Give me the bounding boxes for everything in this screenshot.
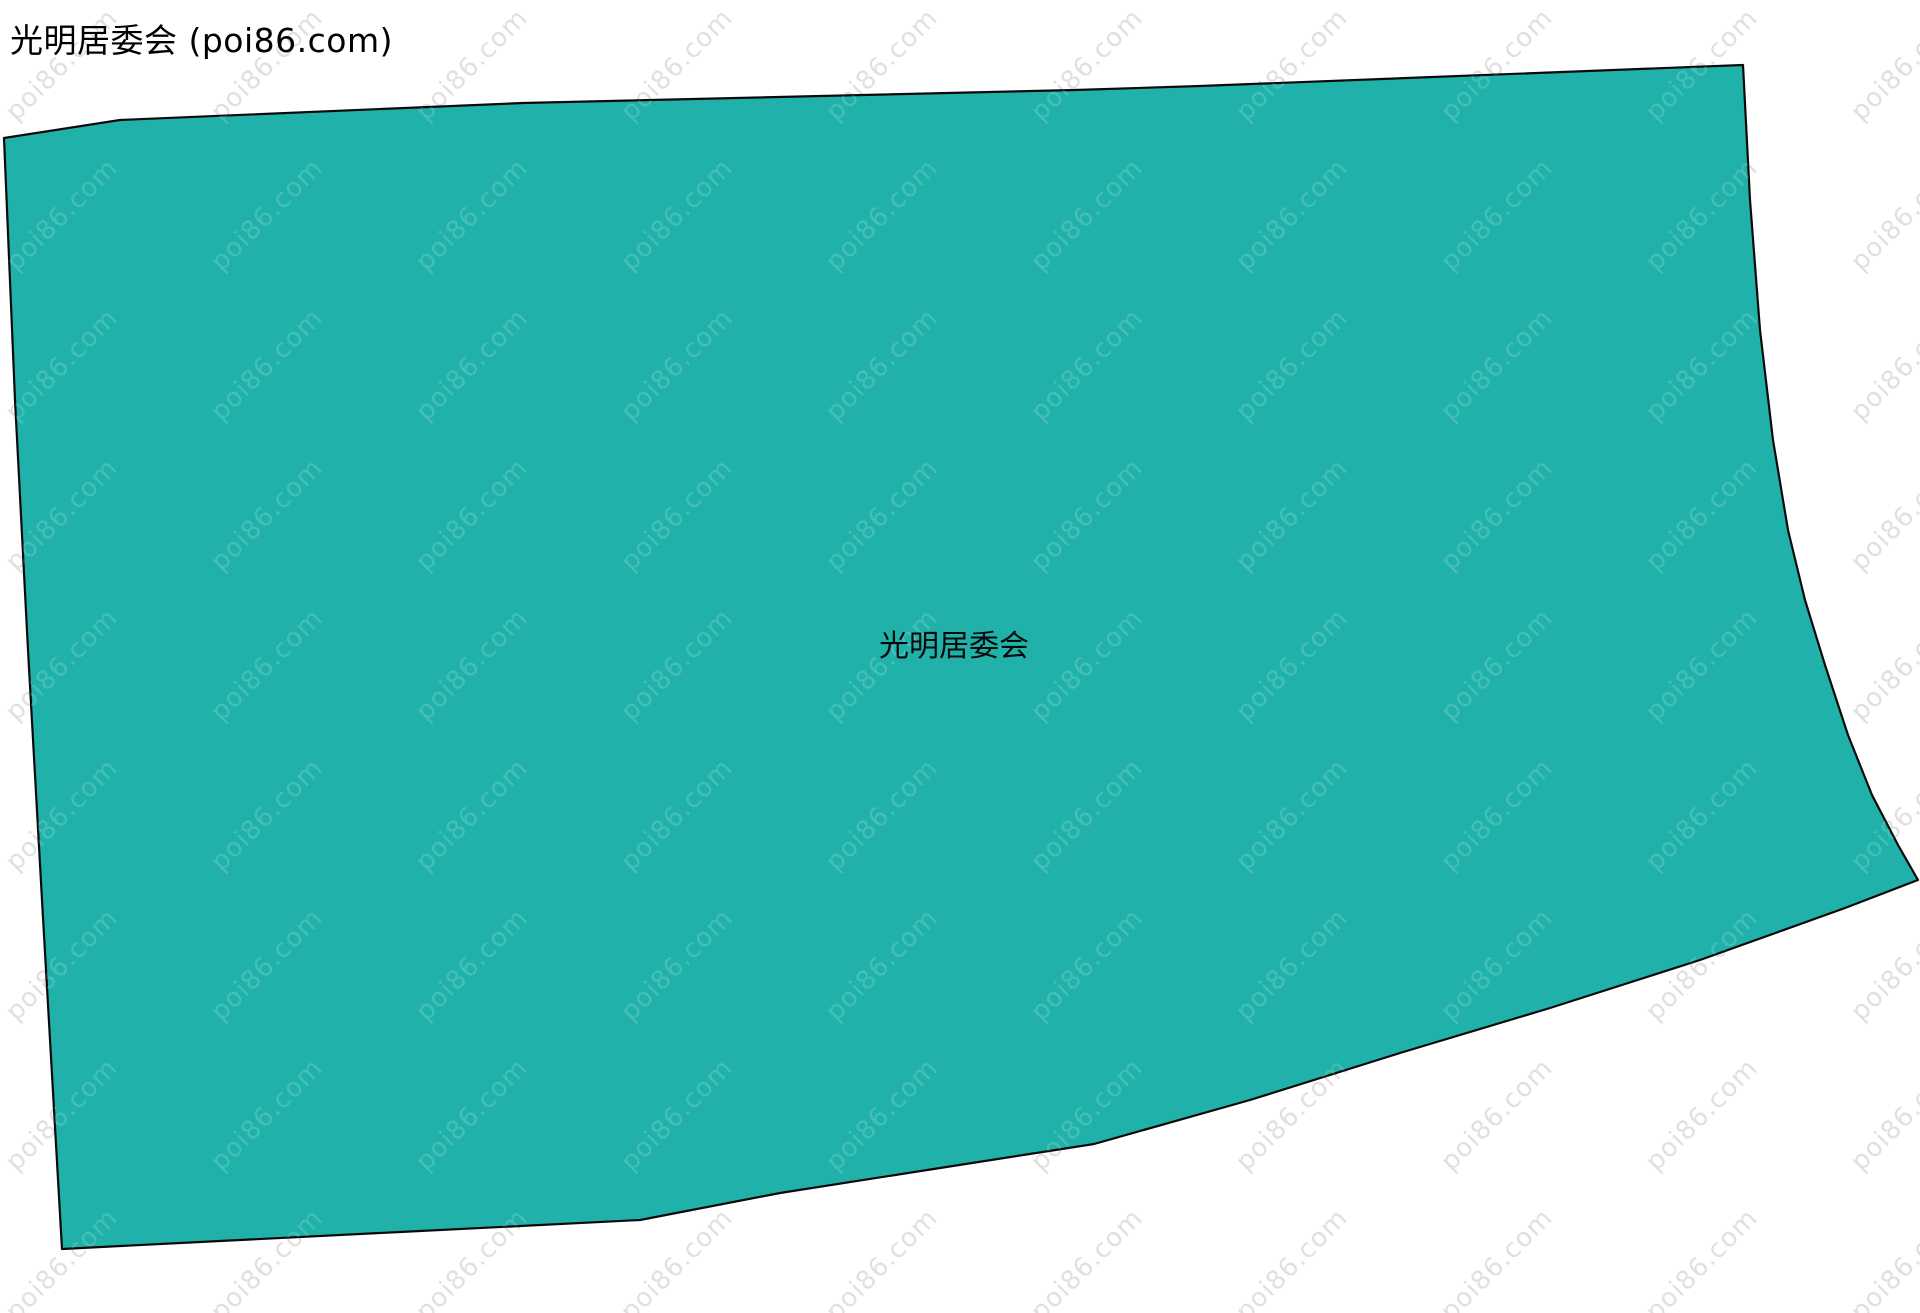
region-label: 光明居委会	[879, 621, 1029, 665]
page-title: 光明居委会 (poi86.com)	[10, 14, 393, 62]
map-screenshot: poi86.com poi86.com 光明居委会 (poi86.com) 光明…	[0, 0, 1920, 1313]
